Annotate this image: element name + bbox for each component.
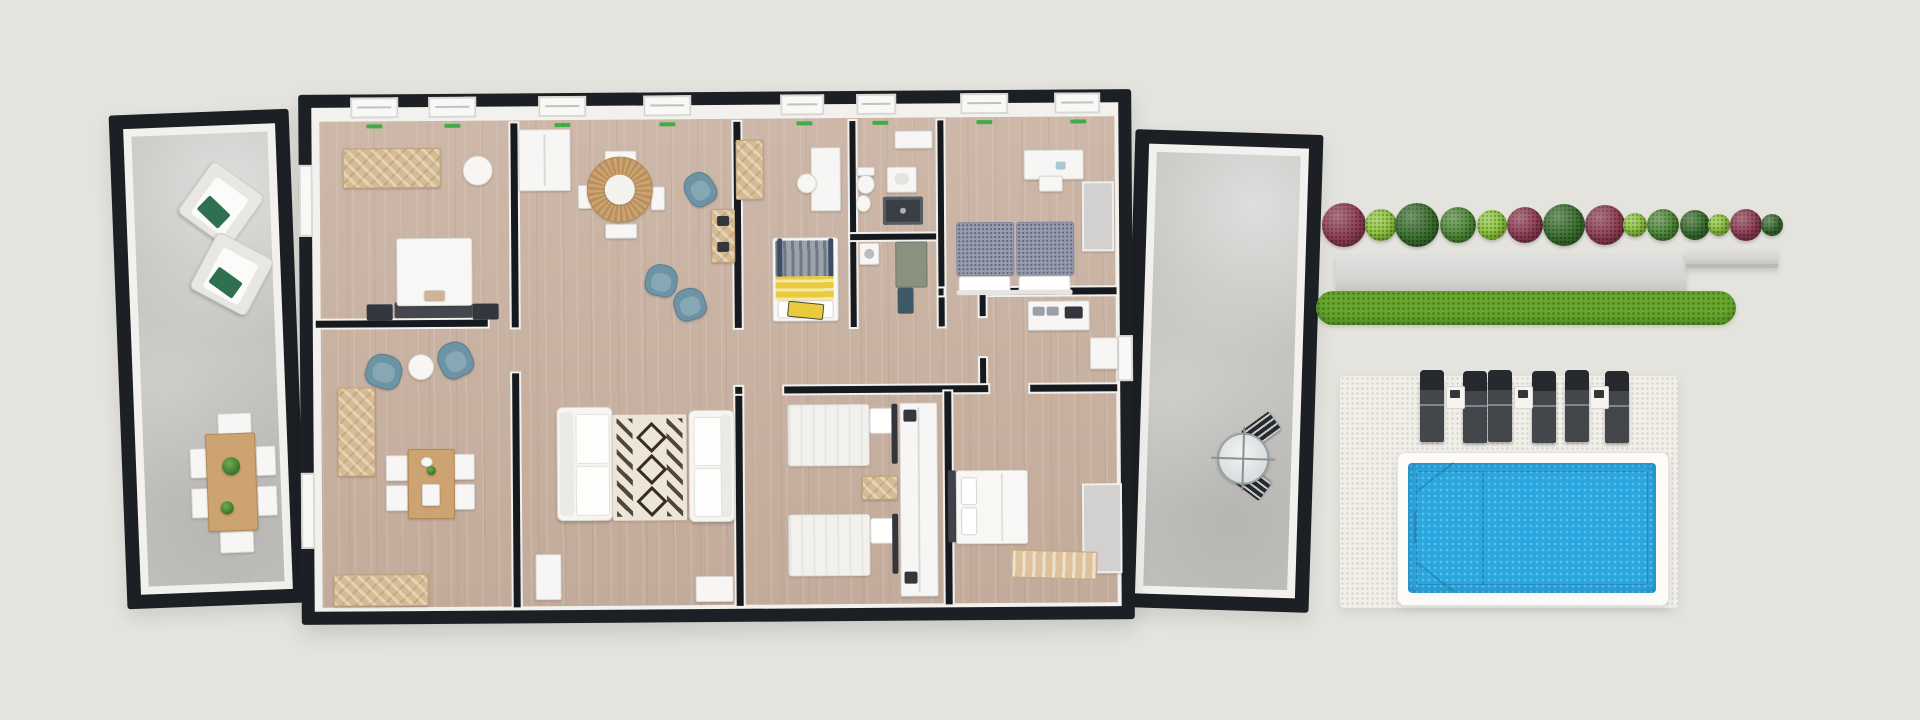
- interior-wall: [735, 390, 744, 606]
- window: [538, 96, 586, 117]
- utility-cabinet: [895, 242, 927, 288]
- chair-seat: [678, 294, 702, 317]
- patio-dining-chair: [257, 485, 278, 516]
- side-table-tray: [1594, 390, 1604, 398]
- shelf-unit: [535, 554, 561, 600]
- table-center: [605, 175, 635, 205]
- house: [298, 89, 1135, 625]
- window-open-indicator: [444, 124, 460, 128]
- round-dining-table: [587, 156, 653, 222]
- desk-chair: [797, 173, 817, 193]
- window: [299, 165, 314, 237]
- window-frame-line: [862, 103, 890, 105]
- dining-chair: [453, 484, 475, 510]
- window-open-indicator: [366, 124, 382, 128]
- bed-pillow: [870, 518, 894, 544]
- sofa-cushion: [576, 466, 610, 516]
- right-patio-concrete-floor: [1143, 152, 1301, 590]
- storage-bench: [1011, 549, 1098, 579]
- interior-wall: [784, 385, 988, 393]
- hedge-bush: [1708, 214, 1730, 236]
- hedge-bush: [1543, 204, 1585, 246]
- rug-pattern: [616, 419, 633, 517]
- window-open-indicator: [976, 120, 992, 124]
- desk-decor: [1056, 162, 1066, 170]
- sofa-cushion: [575, 414, 609, 464]
- blanket-fold: [1001, 473, 1003, 541]
- hedge-bush: [1395, 203, 1439, 247]
- wardrobe: [899, 402, 938, 596]
- toilet: [857, 175, 875, 194]
- dining-chair: [386, 455, 408, 481]
- chair-seat: [688, 178, 713, 204]
- hedge-bush: [1761, 214, 1783, 236]
- window-frame-line: [787, 104, 818, 106]
- single-bed: [788, 514, 870, 577]
- wardrobe-shelf: [903, 410, 916, 422]
- pool-step-line: [1414, 511, 1416, 543]
- rug-diamond: [636, 486, 667, 517]
- window: [428, 97, 476, 118]
- side-table-tray: [1450, 390, 1460, 398]
- sun-lounger: [1488, 378, 1512, 442]
- floor-plan-scene: [0, 0, 1920, 720]
- bed-pillow: [424, 290, 446, 302]
- lounger-fold-bar: [1488, 404, 1512, 406]
- sofa-backrest: [559, 412, 574, 516]
- armchair-seat: [442, 348, 469, 375]
- double-bed: [956, 470, 1029, 545]
- bed-pillow: [961, 507, 977, 535]
- window: [643, 95, 691, 116]
- stove: [1065, 306, 1083, 318]
- appliance: [717, 216, 729, 226]
- wardrobe: [735, 140, 763, 200]
- window: [301, 473, 316, 549]
- pool-side-table: [1446, 386, 1465, 409]
- coffee-table: [408, 354, 434, 380]
- window-frame-line: [1061, 102, 1093, 104]
- left-patio: [109, 109, 308, 610]
- hedge-bush: [1680, 210, 1710, 240]
- hedge-bush: [1507, 207, 1543, 243]
- pool-water: [1408, 463, 1656, 593]
- pool-step-line: [1482, 471, 1484, 585]
- wardrobe-divider: [918, 407, 921, 591]
- rug-pattern: [666, 418, 683, 516]
- rug-diamond: [636, 454, 667, 485]
- lounger-headrest: [1488, 370, 1512, 390]
- window-open-indicator: [1070, 119, 1086, 123]
- sideboard: [337, 387, 376, 476]
- window-frame-line: [545, 105, 579, 107]
- window-frame-line: [650, 105, 684, 107]
- lounger-fold-bar: [1565, 404, 1589, 406]
- wardrobe-shelf: [905, 572, 918, 584]
- closet-door-line: [543, 134, 545, 187]
- window-frame-line: [967, 102, 1001, 104]
- rug-diamond: [636, 422, 667, 453]
- kitchen-counter: [1028, 300, 1090, 330]
- yellow-chair: [787, 301, 824, 320]
- kitchen-sink: [1047, 307, 1059, 316]
- window: [960, 93, 1008, 114]
- single-bed: [787, 404, 869, 467]
- hedge-bush: [1623, 213, 1647, 237]
- lounger-fold-bar: [1420, 404, 1444, 406]
- patio-dining-chair: [255, 445, 276, 476]
- area-rug: [612, 414, 687, 521]
- dining-chair: [386, 485, 408, 511]
- shower-drain: [900, 208, 906, 214]
- hedge-bush: [1365, 209, 1397, 241]
- nightstand: [367, 304, 393, 320]
- dresser: [343, 148, 441, 189]
- interior-wall: [850, 233, 944, 240]
- table-plant: [427, 466, 436, 475]
- sofa: [688, 410, 735, 522]
- interior-wall: [735, 387, 742, 394]
- hedge-bush: [1477, 210, 1507, 240]
- bed-headboard: [892, 514, 898, 574]
- lounger-headrest: [1565, 370, 1589, 390]
- window: [350, 97, 398, 118]
- bed-footboard: [957, 290, 1073, 296]
- kitchen-sink: [1033, 307, 1045, 316]
- utility-shelf: [898, 288, 914, 314]
- storage-chest: [334, 574, 429, 607]
- bunk-bed: [772, 237, 839, 321]
- sofa-cushion: [693, 417, 721, 466]
- kitchen-cabinet: [1090, 337, 1118, 369]
- window-open-indicator: [659, 122, 675, 126]
- grass-strip: [1316, 291, 1736, 325]
- nightstand: [473, 304, 499, 320]
- hedge-bush: [1647, 209, 1679, 241]
- hedge-planter-ledge: [1686, 250, 1778, 268]
- window-frame-line: [357, 107, 391, 109]
- lounger-fold-bar: [1463, 405, 1487, 407]
- washer-door: [864, 249, 874, 259]
- appliance: [717, 242, 729, 252]
- window: [856, 94, 896, 115]
- yellow-blanket: [775, 276, 833, 300]
- bathroom-sink: [887, 167, 917, 193]
- hedge-bush: [1585, 205, 1625, 245]
- sun-lounger: [1420, 378, 1444, 442]
- bathroom-counter: [894, 130, 932, 148]
- table-tray: [422, 484, 440, 506]
- desk-chair: [1039, 176, 1063, 192]
- dining-chair: [453, 454, 475, 480]
- sofa: [556, 407, 613, 521]
- interior-wall: [510, 123, 518, 327]
- double-bed-duvet: [956, 222, 1014, 276]
- armchair-seat: [370, 360, 397, 385]
- bunk-top-mattress: [775, 240, 833, 276]
- interior-wall: [1030, 384, 1117, 392]
- side-table-tray: [1518, 390, 1528, 398]
- dining-chair: [651, 186, 665, 210]
- window-frame-line: [435, 106, 469, 108]
- bed-headboard: [891, 404, 897, 464]
- chair-seat: [650, 271, 672, 292]
- sun-lounger: [1532, 379, 1556, 443]
- patio-dining-chair: [220, 530, 255, 553]
- closet: [518, 129, 570, 191]
- hedge-bush: [1730, 209, 1762, 241]
- side-table: [463, 156, 493, 186]
- lounger-headrest: [1532, 371, 1556, 391]
- window: [1054, 92, 1100, 113]
- interior-wall: [939, 288, 944, 295]
- sink-basin: [895, 173, 909, 185]
- pool-side-table: [1514, 386, 1533, 409]
- nightstand: [862, 476, 898, 500]
- pool-side-table: [1590, 386, 1609, 409]
- window: [780, 94, 824, 115]
- right-patio: [1121, 129, 1324, 613]
- bed-pillow: [961, 477, 977, 505]
- window: [1117, 335, 1133, 381]
- shower: [883, 197, 923, 225]
- lounger-fold-bar: [1532, 405, 1556, 407]
- hedge-bush: [1322, 203, 1366, 247]
- dining-chair: [605, 224, 637, 239]
- bed-pillow: [869, 408, 893, 434]
- bidet: [856, 195, 871, 212]
- sun-lounger: [1463, 379, 1487, 443]
- washing-machine: [859, 243, 879, 265]
- tv-bench: [696, 576, 734, 602]
- double-bed-duvet: [1016, 222, 1074, 276]
- patio-dining-table: [205, 432, 259, 532]
- pool-inner-outline: [1416, 471, 1648, 585]
- closet: [1082, 181, 1114, 251]
- hedge-bush: [1440, 207, 1476, 243]
- kitchenette-unit: [711, 209, 735, 263]
- lounger-headrest: [1463, 371, 1487, 391]
- sofa-cushion: [694, 468, 722, 517]
- window-open-indicator: [872, 121, 888, 125]
- interior-wall: [316, 320, 488, 328]
- window-open-indicator: [554, 123, 570, 127]
- sun-lounger: [1565, 378, 1589, 442]
- window-open-indicator: [796, 121, 812, 125]
- lounger-headrest: [1420, 370, 1444, 390]
